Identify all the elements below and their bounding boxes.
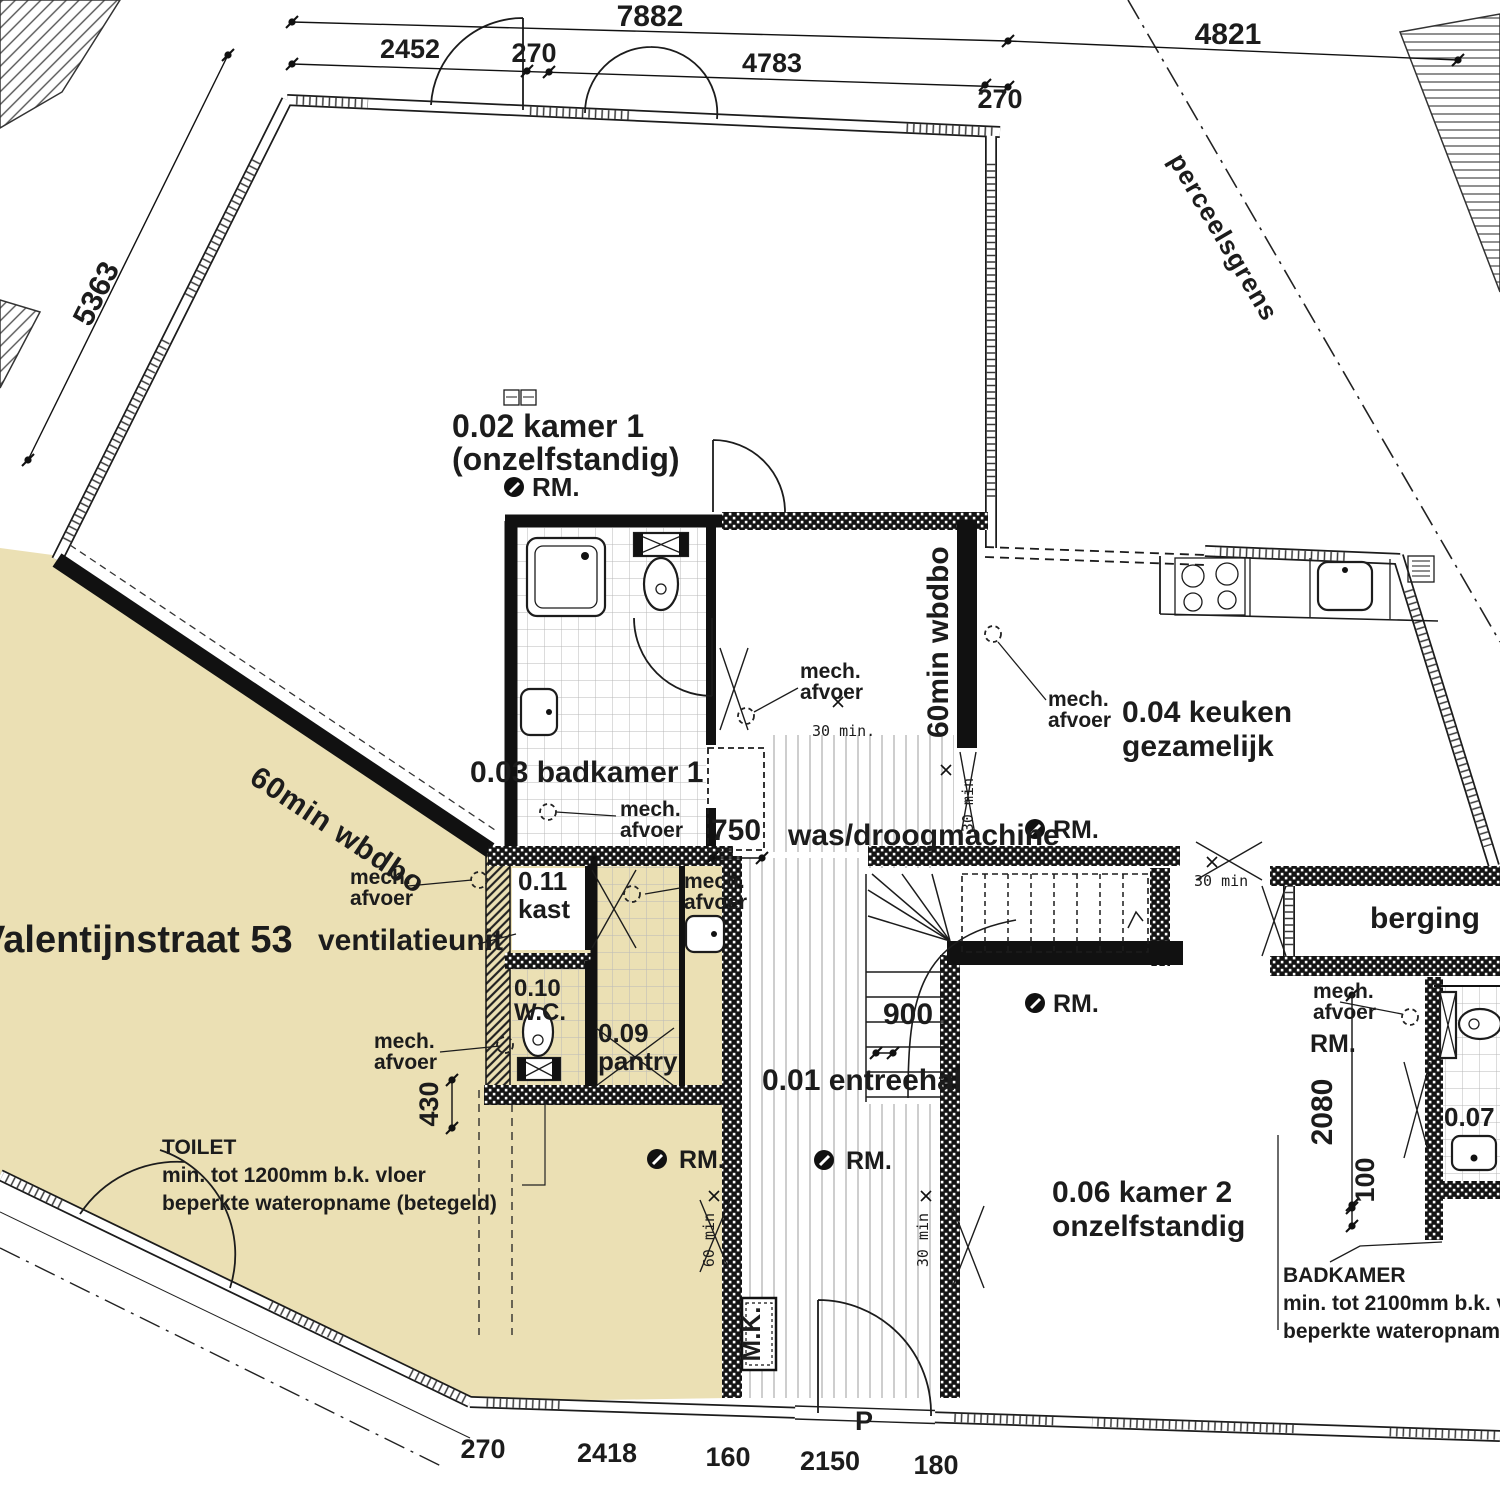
door-rating-label: 30 min [959, 778, 977, 832]
dim-bottom-180: 180 [913, 1450, 958, 1480]
mech-afvoer-label: mech. [684, 870, 745, 893]
dim-bottom-160: 160 [705, 1442, 750, 1472]
dim-4783: 4783 [742, 48, 802, 78]
rm-label-toiletzone: RM. [679, 1146, 725, 1174]
room-label-badkamer2: 0.07 [1444, 1102, 1495, 1132]
room-label-keuken: 0.04 keuken [1122, 696, 1292, 729]
dim-2452: 2452 [380, 34, 440, 64]
mech-afvoer-label: afvoer [800, 681, 863, 704]
dim-270-right: 270 [977, 84, 1022, 114]
street-label: Valentijnstraat 53 [0, 919, 293, 961]
mech-afvoer-label: mech. [350, 866, 411, 889]
rm-label-stairhall: RM. [1053, 990, 1099, 1018]
dim-100: 100 [1350, 1157, 1380, 1202]
floor-plan: 7882 2452 270 4783 270 4821 5363 270 241… [0, 0, 1500, 1500]
shower-badkamer1 [527, 538, 605, 616]
rm-label-south: RM. [1310, 1030, 1356, 1058]
dim-top-total: 7882 [617, 0, 684, 33]
room-label-kast-sub: kast [518, 894, 570, 924]
meter-box-label: M.K. [736, 1307, 766, 1362]
mech-afvoer-label: afvoer [684, 891, 747, 914]
toilet-note-line3: beperkte wateropname (betegeld) [162, 1192, 497, 1215]
room-label-wc-sub: W.C. [514, 999, 566, 1026]
bath-note-line3: beperkte wateropname (betegeld) [1283, 1320, 1500, 1343]
dim-bottom-2150: 2150 [800, 1446, 860, 1476]
sink-badkamer2 [1452, 1136, 1496, 1170]
rm-label-kamer1: RM. [532, 472, 580, 502]
bath-note-title: BADKAMER [1283, 1264, 1406, 1287]
toilet-note-title: TOILET [162, 1136, 236, 1159]
rm-label-wasruimte: RM. [1053, 816, 1099, 844]
mech-afvoer-label: afvoer [620, 819, 683, 842]
mech-afvoer-label: afvoer [1048, 709, 1111, 732]
mech-afvoer-label: mech. [800, 660, 861, 683]
bath-note-line2: min. tot 2100mm b.k. vloer [1283, 1292, 1500, 1315]
washer-dryer-label: was/droogmachine [787, 819, 1060, 852]
dim-bottom-270: 270 [460, 1434, 505, 1464]
ventilation-unit-label: ventilatieunit [318, 924, 503, 957]
room-label-entreehal: 0.01 entreehal [762, 1064, 962, 1097]
toilet-note-line2: min. tot 1200mm b.k. vloer [162, 1164, 426, 1187]
dim-750: 750 [711, 814, 761, 847]
room-label-berging: berging [1370, 902, 1480, 935]
mech-afvoer-label: mech. [1048, 688, 1109, 711]
mech-afvoer-label: afvoer [350, 887, 413, 910]
fire-wall-label-vertical: 60min wbdbo [922, 546, 955, 738]
room-label-pantry: 0.09 [598, 1018, 649, 1048]
door-rating-label: 30 min [1194, 872, 1248, 890]
door-rating-label: 30 min. [812, 722, 875, 740]
room-label-kast: 0.11 [518, 866, 567, 896]
dim-bottom-2418: 2418 [577, 1438, 637, 1468]
room-label-badkamer1: 0.03 badkamer 1 [470, 756, 703, 789]
room-label-pantry-sub: pantry [598, 1046, 678, 1076]
rm-label-entreehal: RM. [846, 1147, 892, 1175]
dim-270-left: 270 [511, 38, 556, 68]
sink-badkamer1 [521, 689, 557, 735]
room-label-wc: 0.10 [514, 975, 561, 1002]
mech-afvoer-label: afvoer [1313, 1001, 1376, 1024]
room-label-keuken-sub: gezamelijk [1122, 730, 1274, 763]
door-rating-label: 60 min [700, 1213, 718, 1267]
dim-430: 430 [414, 1081, 444, 1126]
mech-afvoer-label: afvoer [374, 1051, 437, 1074]
mech-afvoer-label: mech. [1313, 980, 1374, 1003]
smoke-detector-icon [814, 1150, 834, 1170]
sink-pantry [686, 916, 724, 952]
mech-afvoer-label: mech. [374, 1030, 435, 1053]
room-label-kamer2: 0.06 kamer 2 [1052, 1176, 1232, 1209]
dim-2080: 2080 [1306, 1079, 1339, 1146]
door-rating-label: 30 min [914, 1213, 932, 1267]
dim-4821: 4821 [1195, 18, 1262, 51]
mech-afvoer-label: mech. [620, 798, 681, 821]
smoke-detector-icon [504, 477, 524, 497]
marker-p: P [855, 1406, 873, 1436]
dim-900: 900 [883, 998, 933, 1031]
room-label-kamer2-sub: onzelfstandig [1052, 1210, 1245, 1243]
room-label-kamer1: 0.02 kamer 1 [452, 408, 644, 444]
smoke-detector-icon [1025, 993, 1045, 1013]
smoke-detector-icon [647, 1149, 667, 1169]
